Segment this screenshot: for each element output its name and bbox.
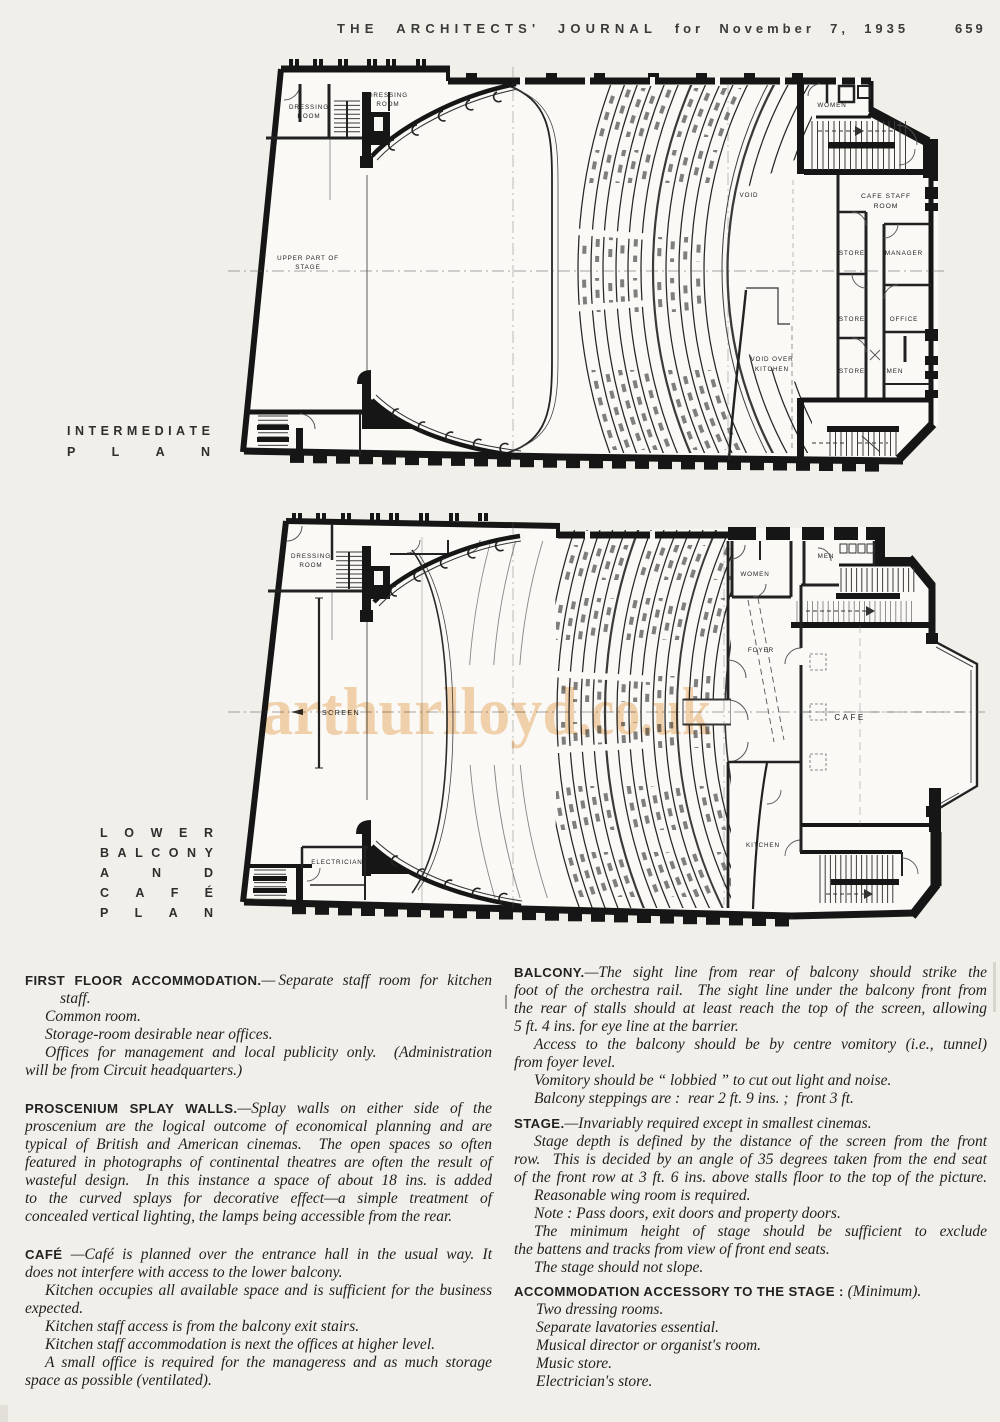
svg-text:CAFE: CAFE <box>834 713 865 722</box>
svg-text:STAGE: STAGE <box>295 264 320 271</box>
svg-text:STORE: STORE <box>839 250 865 257</box>
svg-text:DRESSING: DRESSING <box>291 553 331 560</box>
svg-text:ROOM: ROOM <box>874 203 899 210</box>
svg-text:MEN: MEN <box>887 368 904 375</box>
svg-text:VOID: VOID <box>740 192 759 199</box>
svg-text:ELECTRICIAN: ELECTRICIAN <box>311 859 363 866</box>
svg-text:VOID OVER: VOID OVER <box>750 356 793 363</box>
svg-text:WOMEN: WOMEN <box>740 571 769 578</box>
svg-text:CAFE STAFF: CAFE STAFF <box>861 193 911 200</box>
svg-text:ROOM: ROOM <box>376 101 399 108</box>
svg-text:ROOM: ROOM <box>297 113 320 120</box>
svg-text:UPPER PART OF: UPPER PART OF <box>277 255 339 262</box>
svg-text:ROOM: ROOM <box>299 562 322 569</box>
svg-text:KITCHEN: KITCHEN <box>755 366 789 373</box>
svg-text:KITCHEN: KITCHEN <box>746 842 780 849</box>
svg-text:arthurlloyd.co.uk: arthurlloyd.co.uk <box>261 673 711 749</box>
svg-text:DRESSING: DRESSING <box>368 92 408 99</box>
svg-text:MEN: MEN <box>818 553 835 560</box>
svg-text:DRESSING: DRESSING <box>289 104 329 111</box>
svg-text:OFFICE: OFFICE <box>890 316 919 323</box>
svg-text:FOYER: FOYER <box>748 647 774 654</box>
svg-text:STORE: STORE <box>839 316 865 323</box>
svg-text:STORE: STORE <box>839 368 865 375</box>
svg-text:WOMEN: WOMEN <box>817 102 846 109</box>
svg-text:MANAGER: MANAGER <box>885 250 923 257</box>
